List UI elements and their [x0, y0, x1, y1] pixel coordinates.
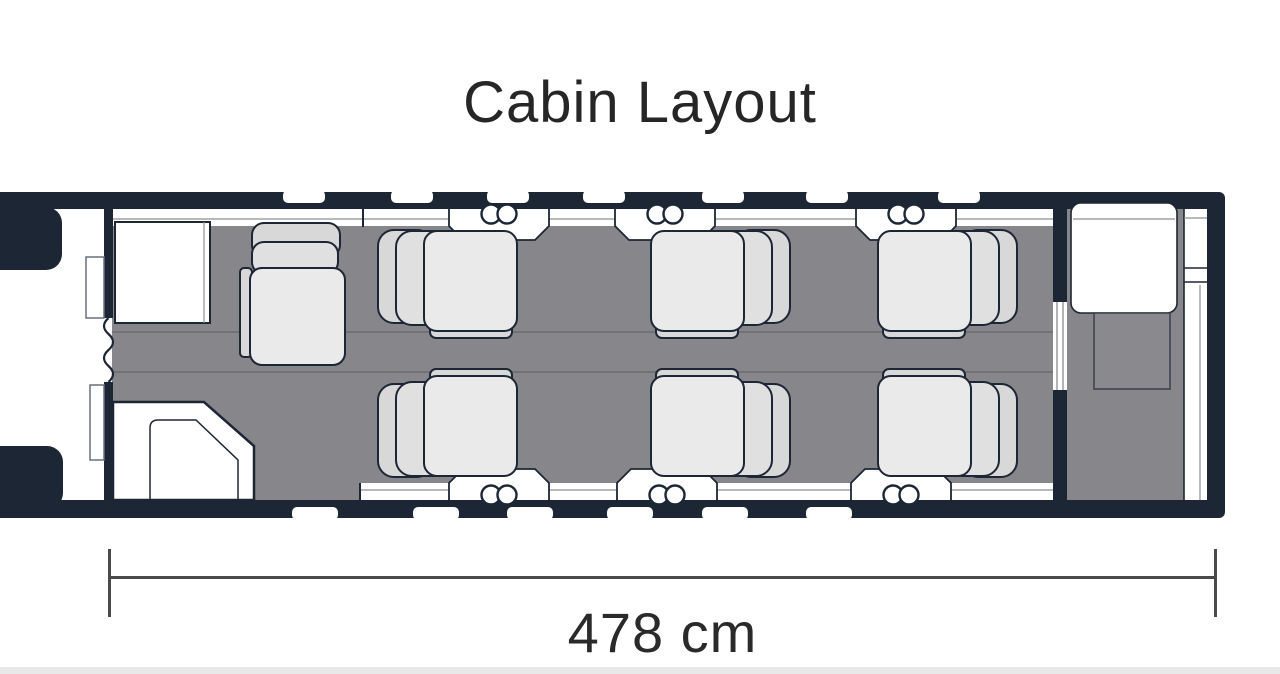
club-seat-aft-top — [878, 230, 1017, 338]
dimension-annotation: 478 cm — [108, 545, 1217, 670]
pilot-seat — [0, 446, 63, 509]
club-seat-mid-top — [651, 230, 790, 338]
aft-wardrobe — [1184, 209, 1207, 500]
page-title: Cabin Layout — [0, 69, 1280, 136]
cockpit-bulkhead — [104, 196, 113, 318]
pilot-seat — [0, 207, 62, 270]
club-seat-forward-bottom — [378, 369, 517, 477]
bottom-divider — [0, 667, 1280, 674]
dimension-label: 478 cm — [108, 600, 1217, 665]
forward-cabinet — [115, 222, 210, 323]
dimension-line — [109, 576, 1216, 579]
side-facing-seat — [240, 223, 345, 365]
club-seat-mid-bottom — [651, 369, 790, 477]
cabin-layout-diagram — [0, 188, 1280, 522]
aft-compartment — [1067, 203, 1207, 500]
club-seat-forward-top — [378, 230, 517, 338]
club-seat-aft-bottom — [878, 369, 1017, 477]
